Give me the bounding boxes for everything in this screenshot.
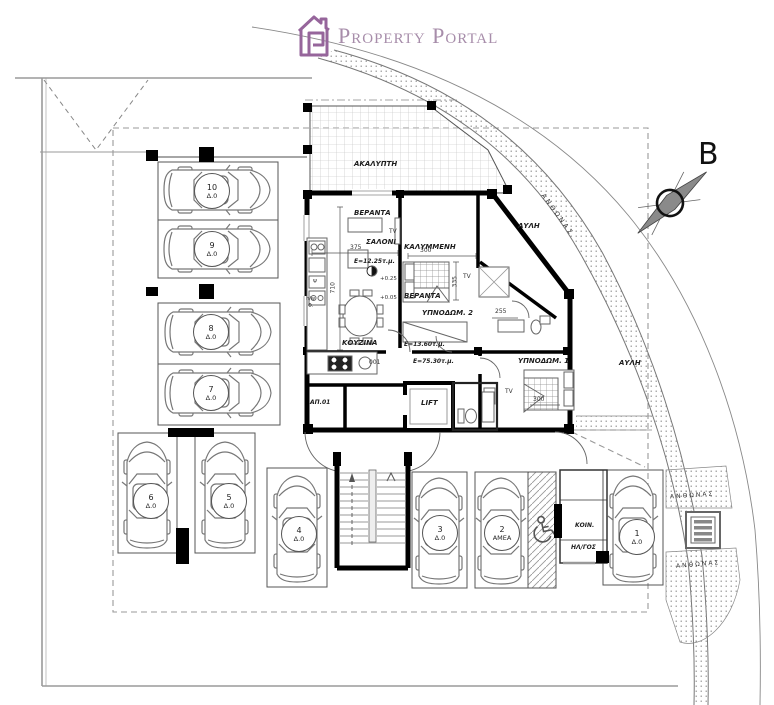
parking-space-3: 3 Δ.0 (422, 515, 458, 551)
covered-veranda-line2: ΒΕΡΑΝΤΑ (404, 292, 456, 301)
dim-salon-height: 710 (329, 273, 337, 303)
parking-tag: Δ.0 (224, 502, 235, 510)
parking-number: 1 (634, 529, 639, 538)
parking-number: 10 (207, 183, 217, 192)
bedroom1-label: ΥΠΝΟΔΩΜ. 1 (518, 357, 569, 366)
parking-tag: Δ.0 (294, 535, 305, 543)
dim-salon-width: 375 (350, 244, 361, 252)
parking-space-5: 5 Δ.0 (211, 483, 247, 519)
appliance-heater-label: h/w (306, 296, 315, 302)
tv-bedroom2-label: TV (463, 273, 471, 281)
parking-space-4: 4 Δ.0 (281, 516, 317, 552)
dim-bed1-width: 300 (533, 396, 544, 404)
appliance-oven-label: Φ. (308, 303, 314, 309)
parking-number: 7 (208, 385, 213, 394)
planters (576, 416, 740, 643)
parking-number: 6 (148, 493, 153, 502)
uncovered-veranda-label: ΑΚΑΛΥΠΤΗ ΒΕΡΑΝΤΑ Ε=12.25τ.μ. (354, 120, 397, 285)
parking-number: 9 (209, 241, 214, 250)
parking-tag: Δ.0 (207, 192, 218, 200)
dim-bed2-height: 335 (451, 267, 459, 297)
parking-tag: Δ.0 (207, 250, 218, 258)
parking-tag: ΑΜΕΑ (493, 534, 512, 542)
living-room-label: ΣΑΛΟΝΙ (366, 238, 396, 247)
uncovered-veranda-line1: ΑΚΑΛΥΠΤΗ (354, 160, 397, 169)
electrical-label-2: ΗΛ/ΓΟΣ (571, 544, 596, 552)
entry-door-code-label: 001 (369, 359, 380, 367)
uncovered-veranda-line2: ΒΕΡΑΝΤΑ (354, 209, 397, 218)
floor-plan-page: Property Portal B ΑΚΑΛΥΠΤΗ ΒΕΡΑΝΤΑ Ε=12.… (0, 0, 774, 705)
north-label: B (698, 136, 719, 174)
parking-tag: Δ.0 (632, 538, 643, 546)
tv-salon-label: TV (389, 228, 397, 236)
covered-veranda-area: Ε=13.60τ.μ. (404, 341, 456, 349)
parking-number: 4 (296, 526, 301, 535)
kitchen-label: ΚΟΥΖΙΝΑ (342, 339, 377, 348)
dim-bed2-width: 300 (420, 247, 431, 255)
house-logo-icon (296, 14, 332, 58)
parking-number: 5 (226, 493, 231, 502)
parking-tag: Δ.0 (206, 394, 217, 402)
parking-space-2: 2 ΑΜΕΑ (484, 515, 520, 551)
parking-tag: Δ.0 (146, 502, 157, 510)
apartment-code-label: ΑΠ.01 (310, 399, 330, 407)
parking-space-6: 6 Δ.0 (133, 483, 169, 519)
total-area-label: Ε=75.30τ.μ. (413, 358, 454, 366)
bedroom2-label: ΥΠΝΟΔΩΜ. 2 (422, 309, 473, 318)
property-portal-logo[interactable]: Property Portal (296, 14, 498, 58)
site-plan-drawing (0, 0, 774, 705)
yard-top-label: ΑΥΛΗ (518, 222, 540, 231)
level-upper: +0.25 (380, 276, 397, 282)
parking-space-1: 1 Δ.0 (619, 519, 655, 555)
appliance-fridge-label: Ψ (313, 279, 317, 285)
dim-bath-width: 255 (495, 308, 506, 316)
level-marker-label: +0.25 +0.05 (380, 263, 397, 307)
lift-label: LIFT (421, 399, 438, 408)
parking-number: 3 (437, 525, 442, 534)
yard-right-label: ΑΥΛΗ (619, 359, 641, 368)
parking-tag: Δ.0 (435, 534, 446, 542)
parking-space-9: 9 Δ.0 (194, 231, 230, 267)
parking-number: 8 (208, 324, 213, 333)
staircase (333, 452, 412, 568)
parking-tag: Δ.0 (206, 333, 217, 341)
tv-bedroom1-label: TV (505, 388, 513, 396)
electrical-label-1: ΚΟΙΝ. (575, 522, 594, 530)
parking-space-7: 7 Δ.0 (193, 375, 229, 411)
covered-veranda-label: ΚΑΛΥΜΜΕΝΗ ΒΕΡΑΝΤΑ Ε=13.60τ.μ. (404, 203, 456, 368)
parking-space-10: 10 Δ.0 (194, 173, 230, 209)
parking-space-8: 8 Δ.0 (193, 314, 229, 350)
parking-number: 2 (499, 525, 504, 534)
logo-title: Property Portal (338, 23, 498, 49)
level-lower: +0.05 (380, 295, 397, 301)
